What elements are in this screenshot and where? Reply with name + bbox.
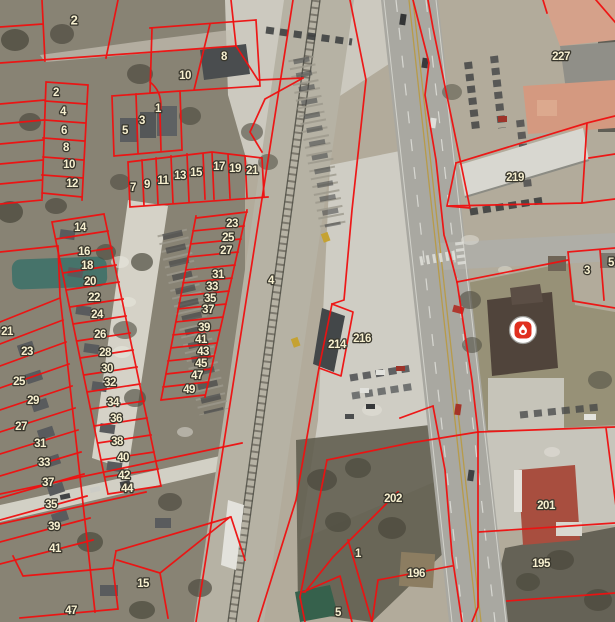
parcel-label-25: 25 [13, 376, 26, 388]
parcel-label-36: 36 [110, 413, 122, 425]
parcel-label-10: 10 [179, 70, 191, 82]
parcel-label-201: 201 [537, 500, 556, 512]
parcel-label-214: 214 [328, 339, 347, 351]
parcel-label-19: 19 [229, 163, 241, 175]
parcel-label-29: 29 [27, 395, 39, 407]
parcel-label-21: 21 [1, 326, 14, 338]
parcel-label-22: 22 [88, 292, 100, 304]
parcel-label-27: 27 [15, 421, 27, 433]
parcel-label-23: 23 [226, 218, 238, 230]
parcel-label-41: 41 [49, 543, 62, 555]
map-viewport[interactable]: 2246810128101357911131517192114161820222… [0, 0, 615, 622]
parcel-label-6: 6 [61, 125, 67, 137]
parcel-label-12: 12 [66, 178, 78, 190]
aerial-parcel-map: 2246810128101357911131517192114161820222… [0, 0, 615, 622]
parcel-label-43: 43 [197, 346, 209, 358]
parcel-label-9: 9 [144, 179, 150, 191]
parcel-label-21: 21 [246, 165, 259, 177]
parcel-label-47: 47 [65, 605, 77, 617]
parcel-label-23: 23 [21, 346, 33, 358]
parcel-label-7: 7 [130, 182, 136, 194]
parcel-label-202: 202 [384, 493, 402, 505]
parcel-label-195: 195 [532, 558, 551, 570]
parcel-label-32: 32 [104, 377, 116, 389]
parcel-label-16: 16 [78, 246, 90, 258]
parcel-label-13: 13 [174, 170, 186, 182]
parcel-label-11: 11 [157, 175, 169, 187]
parcel-label-31: 31 [212, 269, 225, 281]
parcel-label-40: 40 [117, 452, 129, 464]
parcel-label-37: 37 [202, 304, 214, 316]
parcel-label-24: 24 [91, 309, 104, 321]
parcel-label-25: 25 [222, 232, 235, 244]
parcel-label-33: 33 [38, 457, 50, 469]
parcel-label-27: 27 [220, 245, 232, 257]
parcel-label-3: 3 [139, 115, 145, 127]
fire-station-marker[interactable] [510, 317, 537, 344]
parcel-label-45: 45 [195, 358, 208, 370]
parcel-label-34: 34 [107, 397, 120, 409]
parcel-label-227: 227 [552, 51, 570, 63]
parcel-label-17: 17 [213, 161, 225, 173]
parcel-label-31: 31 [34, 438, 47, 450]
parcel-label-39: 39 [198, 322, 210, 334]
parcel-label-28: 28 [99, 347, 112, 359]
parcel-label-196: 196 [407, 568, 425, 580]
parcel-label-2: 2 [71, 13, 78, 28]
parcel-label-2: 2 [53, 87, 59, 99]
parcel-label-18: 18 [81, 260, 94, 272]
parcel-label-41: 41 [195, 334, 208, 346]
parcel-label-42: 42 [118, 470, 130, 482]
parcel-label-49: 49 [183, 384, 195, 396]
parcel-label-38: 38 [111, 436, 124, 448]
parcel-label-39: 39 [48, 521, 60, 533]
parcel-label-44: 44 [121, 483, 134, 495]
parcel-label-33: 33 [206, 281, 218, 293]
parcel-label-35: 35 [45, 499, 58, 511]
parcel-label-20: 20 [84, 276, 96, 288]
parcel-label-26: 26 [94, 329, 106, 341]
parcel-label-37: 37 [42, 477, 54, 489]
parcel-label-219: 219 [506, 172, 524, 184]
parcel-label-15: 15 [190, 167, 203, 179]
parcel-label-47: 47 [191, 370, 203, 382]
parcel-label-15: 15 [137, 578, 150, 590]
parcel-label-30: 30 [101, 363, 113, 375]
parcel-label-14: 14 [74, 222, 87, 234]
parcel-label-216: 216 [353, 333, 371, 345]
parcel-label-3: 3 [584, 265, 590, 277]
parcel-label-10: 10 [63, 159, 75, 171]
